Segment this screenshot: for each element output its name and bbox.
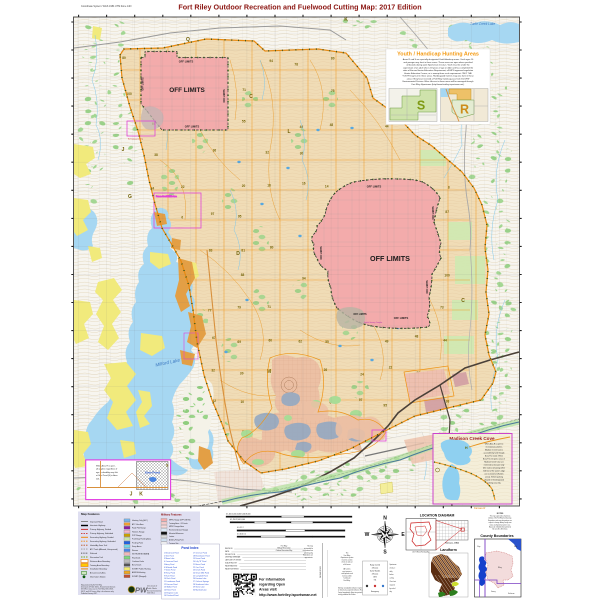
svg-text:C: C bbox=[249, 94, 253, 100]
svg-text:Sinn Pond: Sinn Pond bbox=[145, 471, 160, 475]
svg-text:PROJECTION:: PROJECTION: bbox=[225, 554, 236, 556]
svg-text:Riley: Riley bbox=[498, 567, 502, 569]
svg-text:16: 16 bbox=[302, 181, 306, 185]
svg-text:The: The bbox=[346, 553, 349, 555]
svg-text:ATV Use Area: ATV Use Area bbox=[132, 523, 145, 526]
svg-text:W: W bbox=[365, 532, 370, 538]
svg-text:Kansas, USA: Kansas, USA bbox=[445, 542, 459, 545]
svg-text:87: 87 bbox=[445, 210, 449, 214]
svg-text:N: N bbox=[383, 516, 387, 522]
svg-text:239-xxxx: 239-xxxx bbox=[372, 568, 379, 570]
svg-text:23 Devils Pond: 23 Devils Pond bbox=[193, 570, 205, 572]
svg-text:Training Area - Off Limits: Training Area - Off Limits bbox=[169, 522, 188, 525]
svg-text:G: G bbox=[128, 194, 132, 200]
svg-text:Madison Creek Cove are: Madison Creek Cove are bbox=[484, 461, 503, 464]
svg-text:5 Army Pond: 5 Army Pond bbox=[164, 563, 174, 566]
svg-text:licenses while: licenses while bbox=[342, 575, 351, 577]
svg-text:78: 78 bbox=[294, 63, 298, 67]
svg-text:20: 20 bbox=[242, 184, 246, 188]
svg-text:Railroad: Railroad bbox=[90, 552, 97, 555]
svg-text:Madison Creek Cove is: Madison Creek Cove is bbox=[485, 449, 503, 452]
svg-text:Information Station: Information Station bbox=[90, 576, 105, 579]
svg-text:32: 32 bbox=[211, 369, 215, 373]
svg-text:28 Sturdevant Lake: 28 Sturdevant Lake bbox=[193, 583, 209, 586]
svg-text:required: required bbox=[390, 584, 395, 586]
svg-text:Farnum Creek Wildlife Area: Farnum Creek Wildlife Area bbox=[156, 195, 177, 198]
svg-text:parking area only.: parking area only. bbox=[487, 482, 501, 485]
svg-text:Environmental Division Office.: Environmental Division Office. Access to… bbox=[403, 80, 474, 83]
svg-text:6: 6 bbox=[181, 216, 183, 220]
svg-text:80: 80 bbox=[270, 245, 274, 249]
svg-text:County Boundaries: County Boundaries bbox=[480, 534, 513, 538]
svg-text:OFF LIMITS: OFF LIMITS bbox=[426, 280, 429, 294]
svg-text:daily: daily bbox=[390, 571, 393, 573]
svg-text:Pond Index: Pond Index bbox=[181, 546, 198, 550]
svg-text:Installation Boundary: Installation Boundary bbox=[90, 568, 107, 571]
svg-text:Turtle Creek Lake: Turtle Creek Lake bbox=[470, 22, 495, 26]
svg-text:95: 95 bbox=[383, 404, 387, 408]
svg-text:48: 48 bbox=[330, 123, 334, 127]
svg-text:24: 24 bbox=[360, 373, 364, 377]
svg-text:before: before bbox=[390, 574, 394, 576]
svg-text:ASI/ICA Hunting: ASI/ICA Hunting bbox=[132, 571, 145, 574]
svg-text:Mounted Maneuver: Mounted Maneuver bbox=[169, 532, 184, 535]
svg-text:MPRC Danger Area: MPRC Danger Area bbox=[169, 525, 184, 528]
svg-text:Wab.: Wab. bbox=[514, 546, 518, 548]
svg-text:all anglers regardless of: all anglers regardless of bbox=[96, 469, 118, 471]
svg-text:OFF LIMITS: OFF LIMITS bbox=[185, 125, 200, 129]
svg-text:Improved Road: Improved Road bbox=[90, 520, 103, 523]
svg-text:18: 18 bbox=[267, 184, 271, 188]
svg-text:71: 71 bbox=[267, 305, 271, 309]
svg-text:Confined Lake: Confined Lake bbox=[132, 561, 144, 563]
svg-text:OFF LIMITS: OFF LIMITS bbox=[223, 89, 226, 103]
svg-text:OFF LIMITS: OFF LIMITS bbox=[394, 316, 409, 320]
svg-text:20 Lilly "B" Pond: 20 Lilly "B" Pond bbox=[193, 561, 206, 563]
svg-text:J: J bbox=[122, 147, 125, 153]
svg-text:LOCATION DIAGRAM: LOCATION DIAGRAM bbox=[420, 513, 455, 517]
svg-text:H: H bbox=[465, 446, 468, 450]
svg-text:14 Estes Pond: 14 Estes Pond bbox=[164, 589, 176, 592]
svg-text:79: 79 bbox=[237, 306, 241, 310]
svg-text:83: 83 bbox=[209, 249, 213, 253]
svg-text:7 Vinton Pond: 7 Vinton Pond bbox=[164, 569, 175, 572]
svg-text:12 Farnum Pond: 12 Farnum Pond bbox=[164, 584, 177, 586]
svg-text:94: 94 bbox=[269, 59, 273, 63]
svg-text:44: 44 bbox=[385, 125, 389, 129]
svg-text:supervision of an adult who is: supervision of an adult who is 18 years … bbox=[403, 67, 474, 70]
svg-text:0 1,250 2,500: 0 1,250 2,500 5,000 bbox=[230, 519, 245, 521]
svg-text:60: 60 bbox=[269, 338, 273, 342]
svg-text:state of Kansas Hunter Educati: state of Kansas Hunter Education Require… bbox=[403, 69, 473, 72]
svg-text:101.: 101. bbox=[96, 478, 100, 480]
svg-text:Military Features: Military Features bbox=[161, 512, 182, 516]
svg-text:YOUTH may hunt in these areas.: YOUTH may hunt in these areas. Handicapp… bbox=[402, 75, 474, 78]
svg-text:22 Carr Pond: 22 Carr Pond bbox=[193, 567, 204, 569]
svg-text:When Area H is open,: When Area H is open, bbox=[96, 465, 116, 468]
svg-text:at Sinn Pond (S) in Area: at Sinn Pond (S) in Area bbox=[96, 474, 118, 477]
svg-text:8: 8 bbox=[448, 186, 450, 190]
svg-text:95: 95 bbox=[238, 214, 242, 218]
svg-text:Secondary Highway, Undivided: Secondary Highway, Undivided bbox=[90, 540, 115, 543]
svg-text:Latrine: Latrine bbox=[169, 535, 174, 538]
svg-text:0 0.5: 0 0.5 1 2 bbox=[237, 527, 244, 529]
svg-text:97: 97 bbox=[211, 212, 215, 216]
svg-text:restricted to the water only: restricted to the water only bbox=[484, 464, 505, 467]
svg-text:Recreation Trail: Recreation Trail bbox=[90, 556, 104, 559]
svg-text:OFF LIMITS: OFF LIMITS bbox=[353, 313, 367, 316]
svg-text:ATV Trails (Allowed, Unimprove: ATV Trails (Allowed, Unimproved) bbox=[90, 548, 118, 551]
svg-text:27 Cathcart Springs: 27 Cathcart Springs bbox=[193, 580, 209, 583]
svg-text:4 Cameron Pond: 4 Cameron Pond bbox=[164, 561, 178, 563]
svg-text:30: 30 bbox=[240, 372, 244, 376]
svg-text:75: 75 bbox=[331, 89, 335, 93]
svg-text:81: 81 bbox=[241, 248, 245, 252]
svg-text:Game Warden: Game Warden bbox=[370, 571, 380, 573]
svg-text:http://www.fortriley.isportsma: http://www.fortriley.isportsman.net bbox=[259, 593, 317, 597]
svg-text:49: 49 bbox=[385, 340, 389, 344]
svg-text:62: 62 bbox=[299, 339, 303, 343]
svg-text:NOTES: NOTES bbox=[497, 513, 504, 515]
svg-text:check-in:: check-in: bbox=[390, 567, 396, 569]
svg-text:Training Area Boundary: Training Area Boundary bbox=[90, 564, 109, 567]
svg-text:R: R bbox=[460, 103, 469, 117]
svg-text:GIS Office: GIS Office bbox=[147, 593, 155, 595]
svg-text:Hunter/Ag Farm Trail: Hunter/Ag Farm Trail bbox=[90, 544, 108, 547]
svg-text:Push/Day Hunting Area: Push/Day Hunting Area bbox=[132, 538, 152, 541]
svg-text:Food Plot Range: Food Plot Range bbox=[132, 527, 146, 530]
svg-text:Hunters Range: Hunters Range bbox=[132, 530, 144, 533]
svg-text:77: 77 bbox=[208, 308, 212, 312]
svg-text:Map Features: Map Features bbox=[81, 512, 100, 516]
svg-text:Hunter Education Course, or is: Hunter Education Course, or is exempt fr… bbox=[404, 72, 472, 75]
svg-text:15 Engineer Lake: 15 Engineer Lake bbox=[164, 592, 178, 594]
svg-text:D: D bbox=[236, 251, 240, 257]
svg-text:OFF LIMITS: OFF LIMITS bbox=[179, 60, 194, 64]
svg-text:44: 44 bbox=[443, 339, 447, 343]
svg-text:areas if they have received a: areas if they have received a Fort Riley… bbox=[407, 78, 470, 81]
svg-text:Primary Highway, Divided: Primary Highway, Divided bbox=[90, 528, 111, 531]
svg-text:Seep Areas: Seep Areas bbox=[132, 545, 142, 548]
svg-text:71: 71 bbox=[242, 88, 246, 92]
svg-text:Fort Riley Outdoor Recreation: Fort Riley Outdoor Recreation and Fuelwo… bbox=[178, 3, 421, 12]
svg-text:300 feet of the water's edge: 300 feet of the water's edge bbox=[483, 470, 505, 473]
svg-text:Area H or water. When: Area H or water. When bbox=[485, 455, 503, 458]
svg-text:Riverbank: Riverbank bbox=[132, 556, 140, 559]
svg-text:OFF LIMITS: OFF LIMITS bbox=[320, 246, 323, 260]
svg-text:Clay: Clay bbox=[477, 546, 481, 548]
svg-text:OFF LIMITS: OFF LIMITS bbox=[142, 77, 145, 91]
svg-text:30 Marshall Lake: 30 Marshall Lake bbox=[193, 590, 207, 592]
svg-text:16 Pritchard Pond: 16 Pritchard Pond bbox=[164, 594, 178, 597]
svg-text:13 Walker Pond: 13 Walker Pond bbox=[164, 587, 177, 589]
svg-text:Secondary Highway, Divided: Secondary Highway, Divided bbox=[90, 536, 113, 539]
svg-text:J: J bbox=[130, 492, 133, 498]
svg-text:This map: This map bbox=[307, 546, 313, 548]
svg-text:22: 22 bbox=[181, 185, 185, 189]
svg-text:SOSRT (Merged): SOSRT (Merged) bbox=[132, 575, 147, 578]
svg-text:80: 80 bbox=[331, 57, 335, 61]
svg-text:55: 55 bbox=[242, 119, 246, 123]
svg-text:DES: DES bbox=[373, 577, 376, 579]
svg-text:Landform: Landform bbox=[440, 548, 457, 552]
svg-text:OFF LIMITS: OFF LIMITS bbox=[370, 254, 410, 263]
svg-text:0 1,000 2,000: 0 1,000 2,000 4,000 6,000 8,000 bbox=[226, 513, 250, 515]
svg-text:S: S bbox=[417, 99, 425, 113]
svg-text:3 Moon Lake: 3 Moon Lake bbox=[164, 558, 174, 560]
svg-text:6 Whitside Pond: 6 Whitside Pond bbox=[164, 566, 177, 569]
svg-text:10 Rock Pond: 10 Rock Pond bbox=[164, 578, 175, 580]
svg-text:94: 94 bbox=[302, 276, 306, 280]
svg-text:areas). Vehicle parking: areas). Vehicle parking bbox=[485, 476, 503, 479]
svg-text:Coordinate System: WGS 1984 UT: Coordinate System: WGS 1984 UTM Zone 14N bbox=[81, 5, 132, 8]
svg-text:Area H is not open, areas of: Area H is not open, areas of bbox=[483, 458, 505, 461]
svg-text:by end of: by end of bbox=[390, 588, 397, 590]
svg-text:22: 22 bbox=[389, 365, 393, 369]
svg-text:K: K bbox=[139, 492, 143, 498]
svg-text:8 Henry Pond: 8 Henry Pond bbox=[164, 573, 175, 575]
svg-text:911: 911 bbox=[374, 580, 377, 582]
svg-text:are recreational off-limits: are recreational off-limits bbox=[484, 473, 503, 476]
svg-text:Youth / Handicap Hunting Areas: Youth / Handicap Hunting Areas bbox=[397, 52, 479, 58]
svg-text:11 Lamberson Pond: 11 Lamberson Pond bbox=[164, 581, 180, 583]
svg-text:accessible by land through: accessible by land through bbox=[484, 452, 505, 455]
svg-text:Primary Highway, Undivided: Primary Highway, Undivided bbox=[90, 532, 113, 535]
svg-text:29 Stone Lake: 29 Stone Lake bbox=[193, 586, 205, 589]
svg-text:For information: For information bbox=[259, 578, 285, 582]
svg-text:93: 93 bbox=[446, 399, 450, 403]
svg-text:10: 10 bbox=[241, 400, 245, 404]
svg-text:239-xxxx: 239-xxxx bbox=[372, 574, 379, 576]
svg-text:Artillery Firing Point: Artillery Firing Point bbox=[169, 539, 184, 542]
svg-text:and younger may hunt in these: and younger may hunt in these areas. The… bbox=[403, 61, 472, 64]
svg-text:0 0.25 0.5: 0 0.25 0.5 1 bbox=[237, 533, 246, 535]
svg-text:age or disability may fish: age or disability may fish bbox=[96, 471, 118, 474]
svg-text:all bounds during open iSports: all bounds during open iSportsman check-… bbox=[406, 64, 470, 67]
svg-text:25 Campbell Pond: 25 Campbell Pond bbox=[193, 575, 208, 577]
svg-text:recreational activities,: recreational activities, bbox=[486, 446, 503, 449]
svg-text:REVISION: REVISION bbox=[225, 548, 232, 550]
svg-text:PVP Range: PVP Range bbox=[132, 535, 142, 537]
svg-text:21 Breon Pond: 21 Breon Pond bbox=[193, 564, 205, 566]
svg-text:allowed in the designated: allowed in the designated bbox=[484, 479, 504, 482]
svg-text:full size (36 x 48 inches).: full size (36 x 48 inches). bbox=[492, 529, 508, 531]
svg-text:Annual Leash Area: Annual Leash Area bbox=[90, 572, 107, 575]
svg-text:69: 69 bbox=[237, 340, 241, 344]
svg-text:17 Cheever Pond: 17 Cheever Pond bbox=[193, 553, 207, 555]
svg-text:Benchmark: Benchmark bbox=[132, 564, 141, 567]
svg-text:Parking Point: Parking Point bbox=[132, 541, 143, 544]
svg-text:C: C bbox=[461, 298, 465, 304]
svg-text:OFF LIMITS: OFF LIMITS bbox=[432, 206, 435, 220]
svg-text:Geary: Geary bbox=[491, 590, 496, 593]
svg-text:80: 80 bbox=[122, 56, 126, 60]
svg-text:26: 26 bbox=[324, 368, 328, 372]
svg-text:55: 55 bbox=[325, 340, 329, 344]
svg-text:97: 97 bbox=[359, 398, 363, 402]
svg-text:100: 100 bbox=[444, 273, 450, 277]
svg-text:Boundaries are: Boundaries are bbox=[303, 555, 313, 557]
svg-text:88: 88 bbox=[241, 273, 245, 277]
svg-text:planning only.: planning only. bbox=[304, 552, 313, 554]
svg-text:Areas R and S are specially de: Areas R and S are specially designated Y… bbox=[403, 58, 474, 61]
svg-text:24 Seven Mile Pond: 24 Seven Mile Pond bbox=[193, 573, 209, 575]
svg-text:regarding Open: regarding Open bbox=[259, 583, 285, 587]
svg-text:Interstate Highway: Interstate Highway bbox=[90, 524, 105, 527]
svg-text:1 Breakneck Pond: 1 Breakneck Pond bbox=[164, 553, 179, 555]
svg-text:When Area H is open to: When Area H is open to bbox=[485, 443, 504, 446]
svg-text:Retriever Area Boundary: Retriever Area Boundary bbox=[90, 560, 110, 563]
svg-text:Fort Riley iSportsman (http://: Fort Riley iSportsman (http://www.fortri… bbox=[412, 83, 465, 86]
svg-text:Emergency: Emergency bbox=[371, 591, 379, 593]
svg-text:19 Dreas Pond: 19 Dreas Pond bbox=[193, 558, 205, 560]
svg-text:Dickinson: Dickinson bbox=[508, 593, 515, 595]
svg-text:SOSRT Public Hunting: SOSRT Public Hunting bbox=[132, 568, 151, 571]
svg-text:9 Rush Pond: 9 Rush Pond bbox=[164, 575, 174, 577]
svg-text:Hunting Only (H/C): Hunting Only (H/C) bbox=[132, 519, 148, 522]
svg-text:38: 38 bbox=[154, 153, 158, 157]
svg-text:26 Funston Lake: 26 Funston Lake bbox=[193, 577, 206, 580]
svg-text:(the waters remaining within: (the waters remaining within bbox=[483, 467, 505, 470]
svg-text:Restricted (Down Range): Restricted (Down Range) bbox=[169, 529, 188, 532]
svg-text:32: 32 bbox=[265, 151, 269, 155]
svg-text:14: 14 bbox=[325, 185, 329, 189]
svg-text:2 Sinn Pond: 2 Sinn Pond bbox=[164, 555, 174, 557]
svg-text:OFF LIMITS: OFF LIMITS bbox=[169, 87, 205, 94]
svg-text:NO HUNTING AREA: NO HUNTING AREA bbox=[132, 553, 150, 556]
svg-text:Areas visit: Areas visit bbox=[259, 588, 278, 592]
svg-text:36: 36 bbox=[213, 148, 217, 152]
svg-text:MPRC Range (OFF LIMITS): MPRC Range (OFF LIMITS) bbox=[169, 520, 191, 522]
svg-text:Stream: Stream bbox=[132, 549, 138, 552]
svg-text:18 Eisenhower Pond: 18 Eisenhower Pond bbox=[193, 555, 210, 557]
svg-text:Kansas R: Kansas R bbox=[474, 506, 485, 510]
svg-text:This map supersedes all previo: This map supersedes all previous bbox=[490, 516, 511, 518]
svg-text:OFF LIMITS: OFF LIMITS bbox=[367, 185, 382, 189]
